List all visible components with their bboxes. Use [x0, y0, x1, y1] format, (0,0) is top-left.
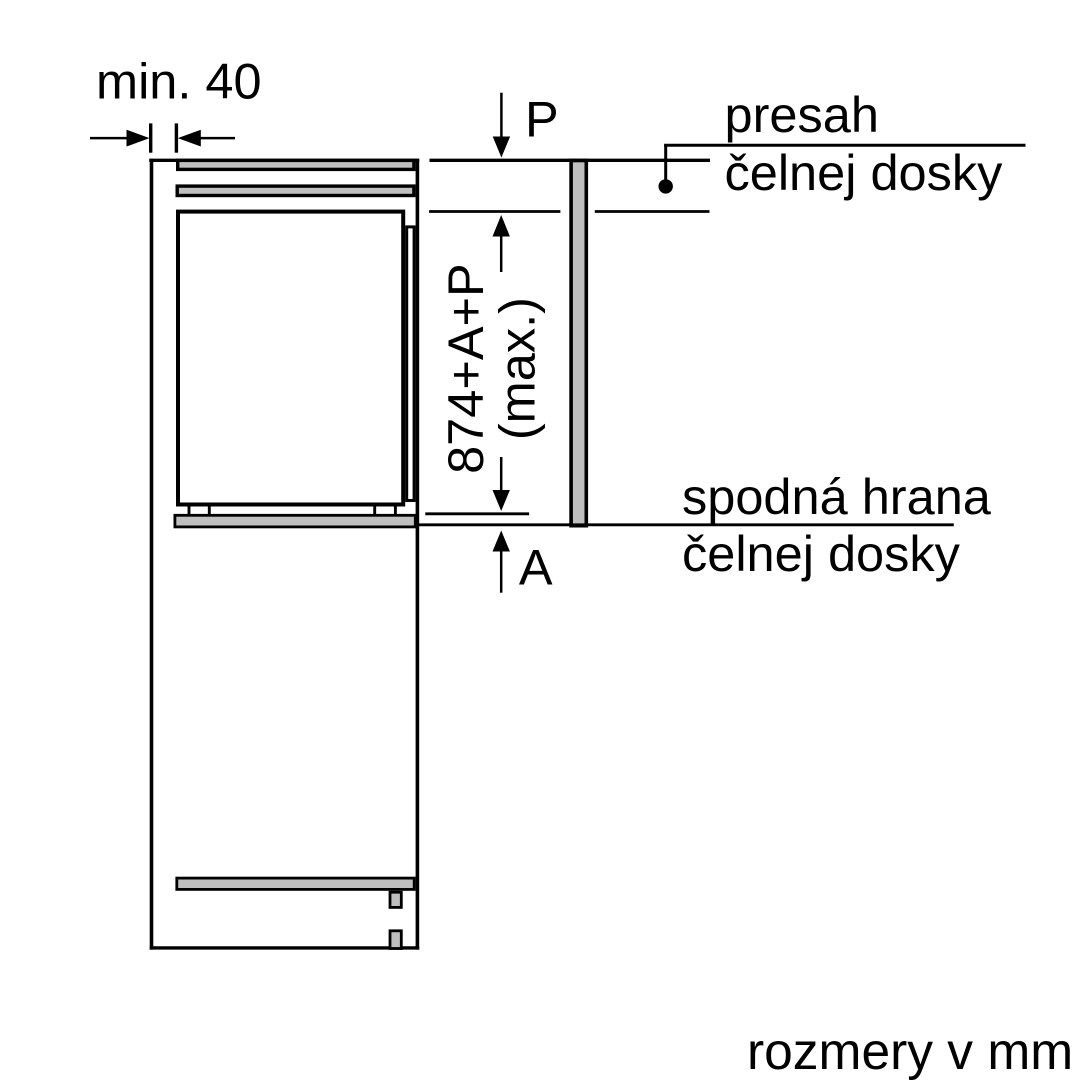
svg-text:čelnej dosky: čelnej dosky [682, 525, 961, 582]
svg-text:874+A+P: 874+A+P [437, 263, 494, 474]
svg-text:(max.): (max.) [489, 297, 546, 440]
svg-text:čelnej dosky: čelnej dosky [725, 144, 1004, 201]
svg-text:min. 40: min. 40 [96, 52, 262, 109]
svg-text:A: A [519, 539, 553, 596]
svg-text:rozmery v mm: rozmery v mm [747, 1022, 1073, 1080]
svg-text:P: P [525, 91, 559, 148]
svg-text:spodná hrana: spodná hrana [682, 468, 992, 525]
svg-text:presah: presah [725, 86, 879, 143]
